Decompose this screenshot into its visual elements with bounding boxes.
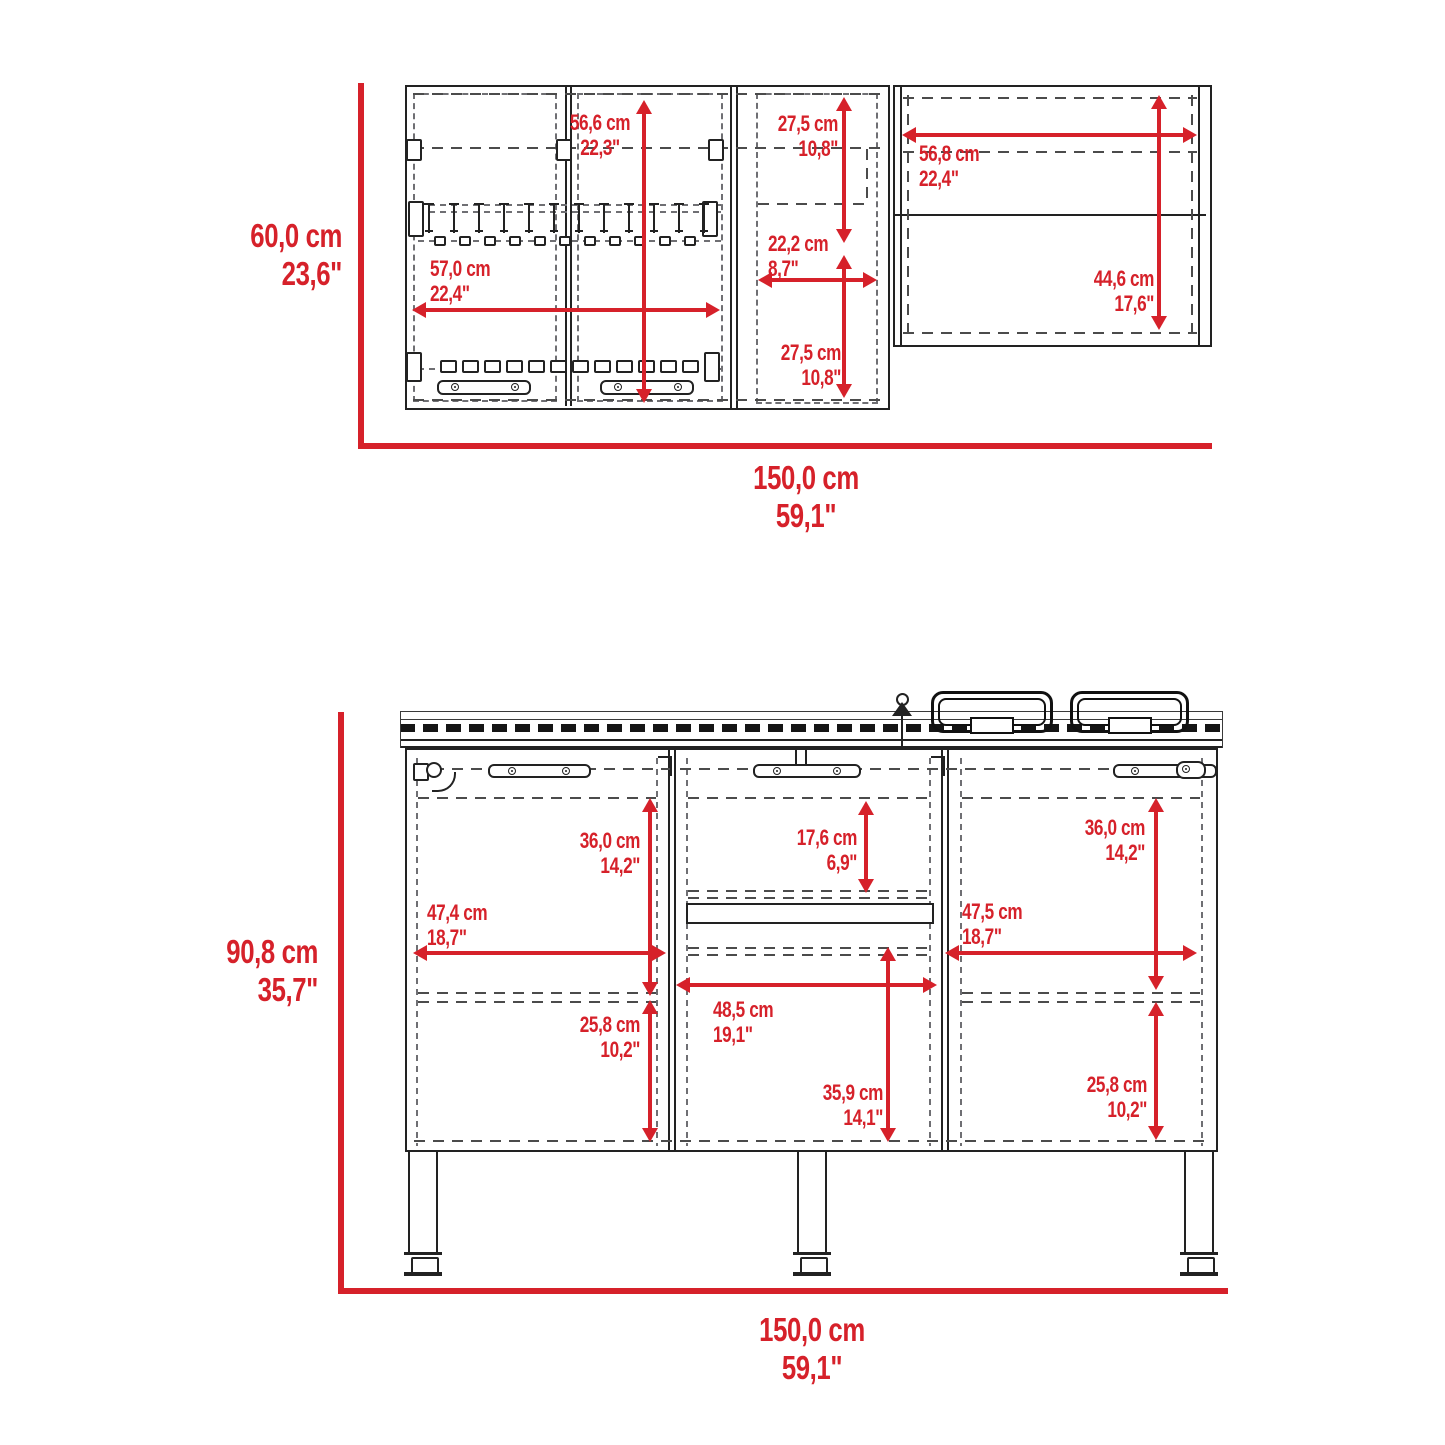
drawing-line: [418, 211, 722, 213]
drawing-line: [670, 756, 672, 776]
cabinet-leg-center: [797, 1152, 799, 1252]
height-extent-line: [358, 83, 364, 447]
drawing-line: [404, 1272, 442, 1276]
drawing-line: [688, 890, 928, 892]
dim-base-overall-width: 150,0 cm 59,1": [734, 1311, 890, 1387]
drawing-line: [893, 85, 1212, 347]
drawing-line: [1201, 758, 1203, 1146]
burner-grate-right: [1070, 691, 1189, 733]
drawing-line: [686, 758, 688, 1146]
drawing-line: [625, 230, 633, 232]
drawing-line: [450, 230, 458, 232]
dim-open-shelf-width: 56,8 cm 22,4": [919, 141, 1013, 191]
drawing-line: [915, 133, 1184, 137]
drawing-line: [406, 352, 422, 382]
drawing-line: [903, 332, 1197, 334]
rack-clip: [616, 360, 633, 373]
dim-right-interior-width: 47,5 cm 18,7": [962, 899, 1056, 949]
rack-clip: [594, 360, 611, 373]
rack-clip: [509, 236, 521, 246]
drawing-line: [758, 203, 868, 205]
drawing-line: [674, 203, 684, 205]
drawing-line: [901, 724, 903, 748]
rack-hanger: [653, 203, 655, 233]
rack-hanger: [528, 203, 530, 233]
rack-hanger: [603, 203, 605, 233]
dim-left-interior-width: 47,4 cm 18,7": [427, 900, 521, 950]
drawing-line: [736, 85, 738, 410]
dim-right-lower-height: 25,8 cm 10,2": [1053, 1072, 1147, 1122]
drawing-line: [825, 1152, 827, 1252]
hinge-icon: [406, 139, 422, 161]
dim-left-upper-height: 36,0 cm 14,2": [546, 828, 640, 878]
drawer-front: [686, 903, 934, 924]
drawing-line: [958, 951, 1184, 955]
rack-hanger: [553, 203, 555, 233]
drawing-line: [688, 797, 928, 799]
dim-middle-interior-width: 22,2 cm 8,7": [768, 231, 854, 281]
rack-clip: [459, 236, 471, 246]
leg-foot: [793, 1252, 831, 1255]
drawing-line: [400, 739, 1223, 741]
dim-open-shelf-height: 44,6 cm 17,6": [1060, 266, 1154, 316]
rack-clip: [682, 360, 699, 373]
dim-middle-interior-width: 48,5 cm 19,1": [713, 997, 807, 1047]
drawing-line: [624, 203, 634, 205]
drawing-line: [549, 203, 559, 205]
rack-hanger: [453, 203, 455, 233]
drawing-line: [704, 352, 720, 382]
dim-base-overall-height: 90,8 cm 35,7": [190, 933, 318, 1009]
door-left-hidden-edge: [413, 93, 557, 402]
drawing-line: [650, 230, 658, 232]
rack-clip: [572, 360, 589, 373]
rack-clip: [434, 236, 446, 246]
rack-clip: [484, 236, 496, 246]
rack-clip: [440, 360, 457, 373]
burner-grate-left: [931, 691, 1053, 733]
rack-clip: [550, 360, 567, 373]
drawing-line: [1180, 1272, 1218, 1276]
drawing-line: [962, 797, 1200, 799]
drawing-line: [805, 748, 807, 766]
drawing-line: [600, 230, 608, 232]
drawing-line: [475, 230, 483, 232]
drawing-line: [418, 797, 656, 799]
drawing-line: [400, 711, 401, 748]
drawing-line: [864, 814, 868, 880]
drawing-line: [866, 149, 868, 203]
drawing-line: [649, 203, 659, 205]
drawing-line: [449, 203, 459, 205]
drawing-line: [524, 203, 534, 205]
drawing-line: [795, 748, 797, 766]
rack-clip: [528, 360, 545, 373]
drawing-line: [943, 756, 945, 776]
drawing-line: [424, 203, 434, 205]
mounting-rail-left: [488, 764, 591, 778]
drawing-line: [525, 230, 533, 232]
drawing-line: [574, 203, 584, 205]
drawing-line: [700, 230, 708, 232]
drawing-line: [842, 268, 846, 385]
drawing-line: [842, 110, 846, 230]
rack-hanger: [678, 203, 680, 233]
drawing-line: [793, 1272, 831, 1276]
dim-door-interior-height: 56,6 cm 22,3": [553, 110, 647, 160]
drawing-line: [1154, 1015, 1158, 1127]
hinge-icon: [708, 139, 724, 161]
width-extent-line: [358, 443, 1212, 449]
leg-foot: [1180, 1252, 1218, 1255]
rack-clip: [462, 360, 479, 373]
drawing-line: [575, 230, 583, 232]
dim-upper-overall-height: 60,0 cm 23,6": [214, 217, 342, 293]
drawing-line: [1212, 1152, 1214, 1252]
drawing-line: [426, 951, 653, 955]
drawing-line: [901, 712, 903, 724]
drawing-line: [500, 230, 508, 232]
rack-clip: [534, 236, 546, 246]
drawing-line: [425, 230, 433, 232]
rack-clip: [559, 236, 571, 246]
drawing-line: [499, 203, 509, 205]
rack-clip: [506, 360, 523, 373]
drawing-line: [1222, 711, 1223, 748]
rack-clip: [659, 236, 671, 246]
dim-drawer-interior-height: 17,6 cm 6,9": [763, 825, 857, 875]
drawing-line: [730, 85, 732, 410]
drawing-line: [886, 960, 890, 1129]
dim-middle-lower-height: 35,9 cm 14,1": [789, 1080, 883, 1130]
rack-hanger: [428, 203, 430, 233]
leg-foot: [404, 1252, 442, 1255]
drawing-line: [418, 992, 656, 994]
drawing-line: [425, 308, 707, 312]
rack-hanger: [478, 203, 480, 233]
drawing-line: [550, 230, 558, 232]
rack-clip: [660, 360, 677, 373]
rack-hanger: [578, 203, 580, 233]
drawing-line: [941, 748, 943, 1152]
rack-hanger: [628, 203, 630, 233]
rack-clip: [484, 360, 501, 373]
cabinet-leg-left: [408, 1152, 410, 1252]
dim-door-interior-width: 57,0 cm 22,4": [430, 256, 524, 306]
drawing-line: [962, 1001, 1200, 1003]
drawing-line: [436, 1152, 438, 1252]
dim-left-lower-height: 25,8 cm 10,2": [546, 1012, 640, 1062]
width-extent-line: [338, 1288, 1228, 1294]
rack-hanger: [703, 203, 705, 233]
mounting-rail-middle: [753, 764, 861, 778]
rack-clip: [584, 236, 596, 246]
dim-middle-upper-height: 27,5 cm 10,8": [744, 111, 838, 161]
drawing-line: [668, 748, 670, 1152]
cabinet-leg-right: [1184, 1152, 1186, 1252]
drawing-line: [418, 1001, 656, 1003]
rack-clip: [684, 236, 696, 246]
hinge-right-icon: [1176, 761, 1206, 779]
cabinet-dimension-drawing: 60,0 cm 23,6" 150,0 cm 59,1" 56,6 cm 22,…: [0, 0, 1445, 1445]
drawing-line: [413, 93, 884, 95]
drawing-line: [1157, 108, 1161, 317]
rack-clip: [609, 236, 621, 246]
drawing-line: [699, 203, 709, 205]
drawing-line: [408, 201, 424, 237]
door-handle-left: [437, 380, 531, 395]
rack-clip: [638, 360, 655, 373]
drawing-line: [962, 992, 1200, 994]
drawing-line: [414, 1140, 1212, 1142]
drawing-line: [688, 897, 928, 899]
drawing-line: [674, 748, 676, 1152]
height-extent-line: [338, 712, 344, 1294]
rack-hanger: [503, 203, 505, 233]
drawing-line: [474, 203, 484, 205]
dim-upper-overall-width: 150,0 cm 59,1": [728, 459, 884, 535]
drawing-line: [929, 758, 931, 1146]
drawing-line: [675, 230, 683, 232]
drawing-line: [648, 1013, 652, 1129]
drawing-line: [599, 203, 609, 205]
dim-right-upper-height: 36,0 cm 14,2": [1051, 815, 1145, 865]
dim-middle-lower-height: 27,5 cm 10,8": [747, 340, 841, 390]
